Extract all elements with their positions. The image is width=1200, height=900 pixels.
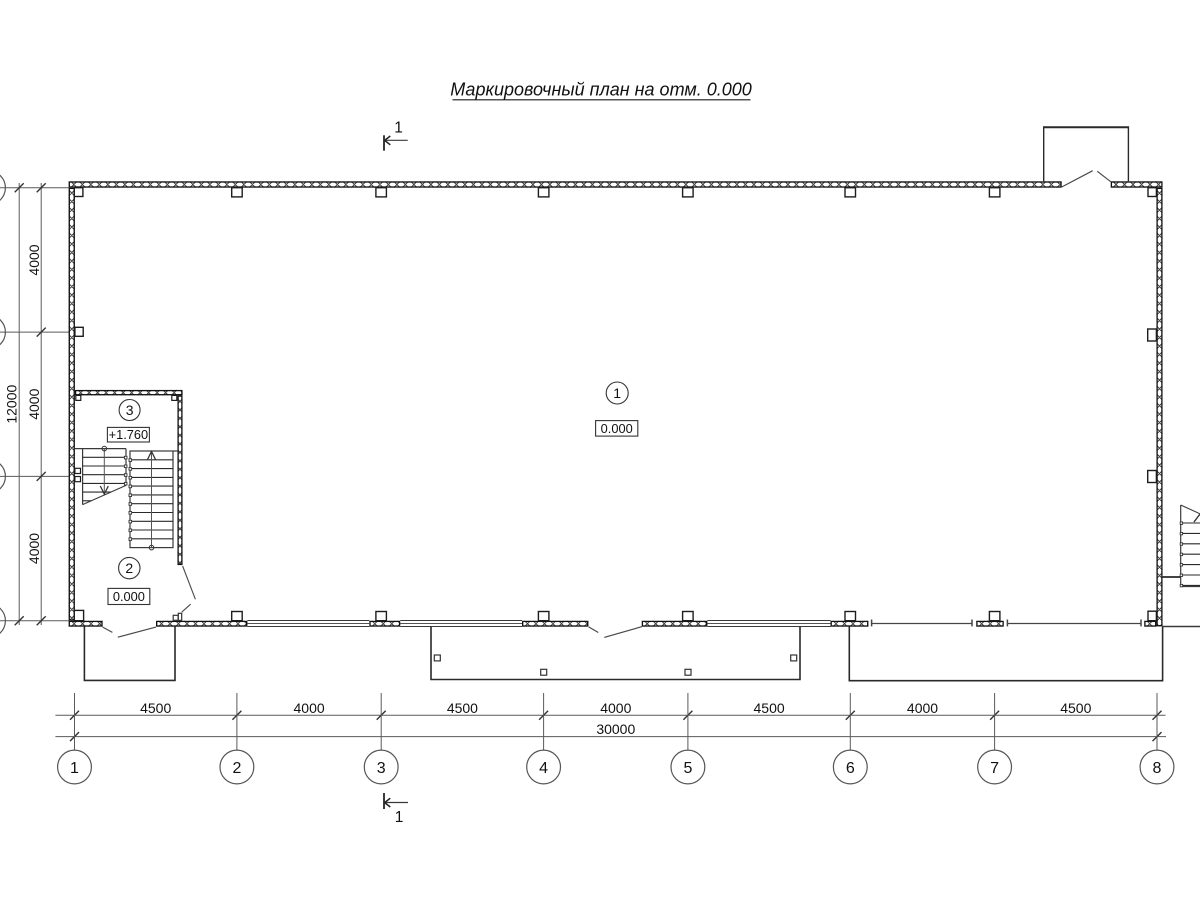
svg-text:4000: 4000 xyxy=(600,700,631,716)
svg-text:12000: 12000 xyxy=(4,385,20,424)
svg-text:6: 6 xyxy=(846,760,855,777)
svg-text:4000: 4000 xyxy=(907,700,938,716)
svg-text:4000: 4000 xyxy=(294,700,325,716)
svg-text:1: 1 xyxy=(394,120,403,137)
svg-text:0.000: 0.000 xyxy=(601,421,633,436)
svg-text:Маркировочный план на отм. 0.0: Маркировочный план на отм. 0.000 xyxy=(450,80,752,100)
svg-text:5: 5 xyxy=(683,760,692,777)
svg-text:1: 1 xyxy=(613,385,621,401)
svg-text:4000: 4000 xyxy=(26,388,42,419)
svg-text:30000: 30000 xyxy=(596,721,635,737)
svg-text:4500: 4500 xyxy=(1060,700,1091,716)
svg-text:1: 1 xyxy=(395,809,404,826)
svg-text:4500: 4500 xyxy=(447,700,478,716)
svg-text:+1.760: +1.760 xyxy=(109,427,149,442)
svg-text:3: 3 xyxy=(377,760,386,777)
svg-text:4: 4 xyxy=(539,760,548,777)
svg-text:1: 1 xyxy=(70,760,79,777)
svg-text:0.000: 0.000 xyxy=(113,589,145,604)
svg-text:3: 3 xyxy=(126,402,134,418)
svg-text:8: 8 xyxy=(1153,760,1162,777)
svg-text:7: 7 xyxy=(990,760,999,777)
svg-text:2: 2 xyxy=(125,560,133,576)
svg-text:2: 2 xyxy=(232,760,241,777)
svg-text:4000: 4000 xyxy=(26,244,42,275)
svg-text:4500: 4500 xyxy=(754,700,785,716)
svg-text:4000: 4000 xyxy=(26,533,42,564)
svg-text:4500: 4500 xyxy=(140,700,171,716)
